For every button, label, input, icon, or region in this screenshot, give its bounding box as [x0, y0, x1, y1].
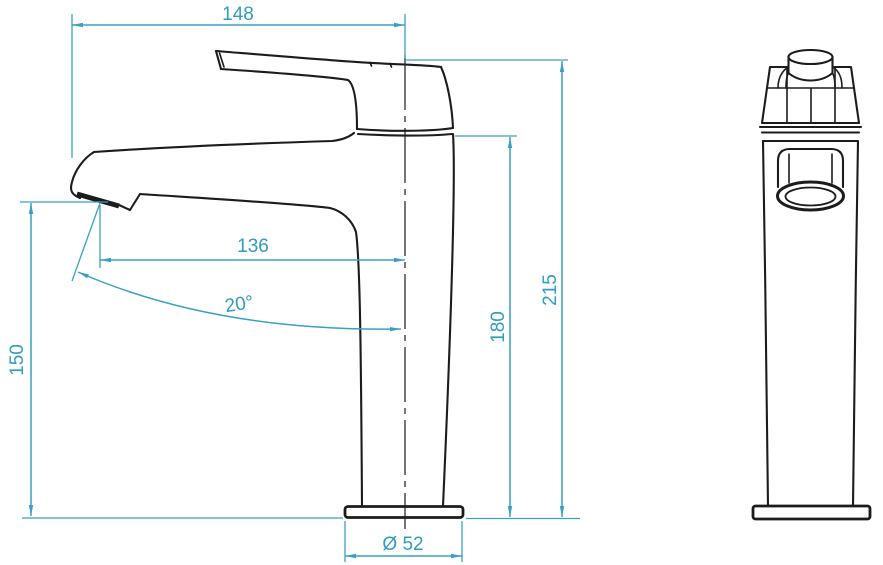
- dimension-label-136: 136: [237, 236, 269, 257]
- base-plate-side: [345, 507, 463, 518]
- dimension-label-20deg: 20°: [223, 292, 255, 317]
- dimension-label-base-diameter: Ø 52: [382, 534, 423, 555]
- spout-left-edge: [71, 152, 94, 198]
- outlet-inner-lines: [789, 154, 832, 183]
- dimension-label-180: 180: [488, 311, 509, 343]
- handle-top-edge: [216, 51, 441, 67]
- handle-bottom-edge: [221, 69, 357, 129]
- extension-lines: [72, 14, 405, 158]
- handle-right-edge: [441, 67, 453, 128]
- dimension-52-base-diameter: Ø 52: [345, 521, 462, 562]
- outlet-inner-ring: [786, 188, 836, 206]
- front-view: [753, 50, 870, 519]
- dimension-180-body-height: 180: [455, 136, 517, 517]
- angle-reference-line: [72, 203, 100, 281]
- knob: [789, 50, 833, 81]
- knob-top: [789, 50, 833, 64]
- base-plate-front: [753, 506, 870, 519]
- dimension-148-top-width: 148: [72, 4, 405, 158]
- dimension-label-215: 215: [540, 274, 561, 306]
- body-right-edge: [443, 134, 454, 506]
- dimension-215-total-height: 215: [405, 60, 568, 517]
- spout-top-edge: [94, 133, 354, 152]
- dimension-136-spout-reach: 136: [100, 205, 405, 268]
- spout-outlet: [778, 149, 844, 210]
- dimension-150-spout-height: 150: [7, 202, 108, 516]
- technical-drawing-canvas: 148 136 20° 150 180 215 Ø 52: [0, 0, 883, 565]
- faucet-dimension-drawing: 148 136 20° 150 180 215 Ø 52: [0, 0, 883, 565]
- body-collar-lines: [760, 127, 861, 133]
- dimension-label-150: 150: [7, 344, 28, 376]
- dimension-label-148: 148: [222, 4, 254, 25]
- side-view: [71, 51, 463, 529]
- aerator: [77, 194, 119, 206]
- ground-baseline: [22, 518, 580, 519]
